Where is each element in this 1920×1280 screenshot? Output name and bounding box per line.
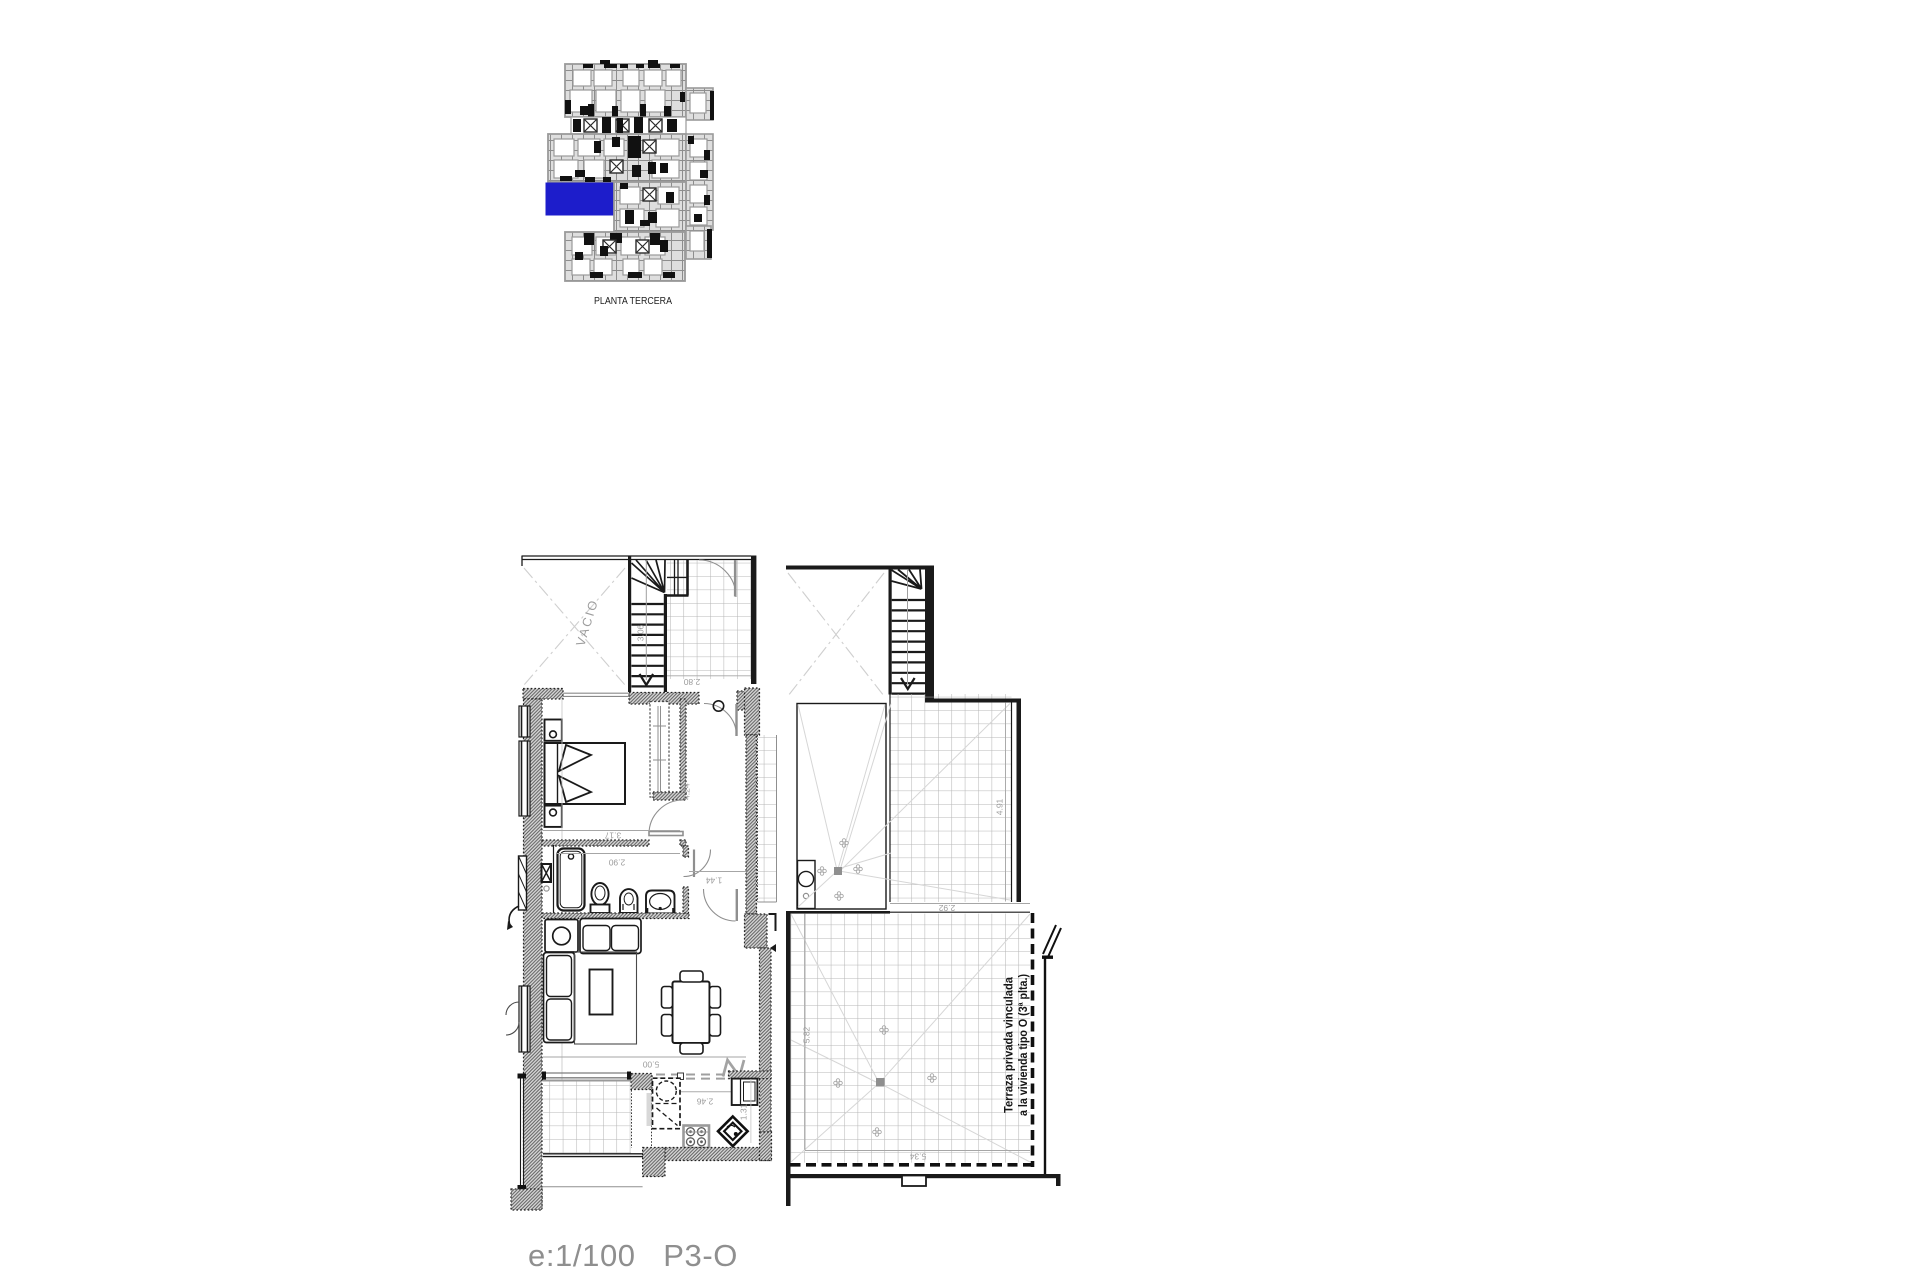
svg-text:2.92: 2.92 — [938, 903, 955, 913]
svg-text:a la vivienda tipo O (3ª plta.: a la vivienda tipo O (3ª plta.) — [1016, 974, 1030, 1116]
svg-text:2.46: 2.46 — [696, 1097, 713, 1107]
svg-text:2.90: 2.90 — [608, 857, 625, 867]
svg-text:1.31: 1.31 — [739, 1103, 749, 1120]
svg-text:3.06: 3.06 — [636, 624, 646, 641]
svg-text:5.82: 5.82 — [802, 1026, 812, 1043]
svg-text:PLANTA TERCERA: PLANTA TERCERA — [594, 295, 672, 307]
svg-text:4.91: 4.91 — [995, 798, 1005, 815]
svg-text:3.17: 3.17 — [604, 831, 621, 841]
svg-text:5.34: 5.34 — [909, 1151, 926, 1161]
svg-text:4.24: 4.24 — [682, 783, 692, 800]
svg-text:1.44: 1.44 — [705, 875, 722, 885]
svg-text:5.00: 5.00 — [642, 1060, 659, 1070]
svg-text:2.80: 2.80 — [683, 677, 700, 687]
svg-text:e:1/100 P3-O: e:1/100 P3-O — [528, 1238, 738, 1273]
svg-text:Terraza privada vinculada: Terraza privada vinculada — [1002, 977, 1016, 1113]
